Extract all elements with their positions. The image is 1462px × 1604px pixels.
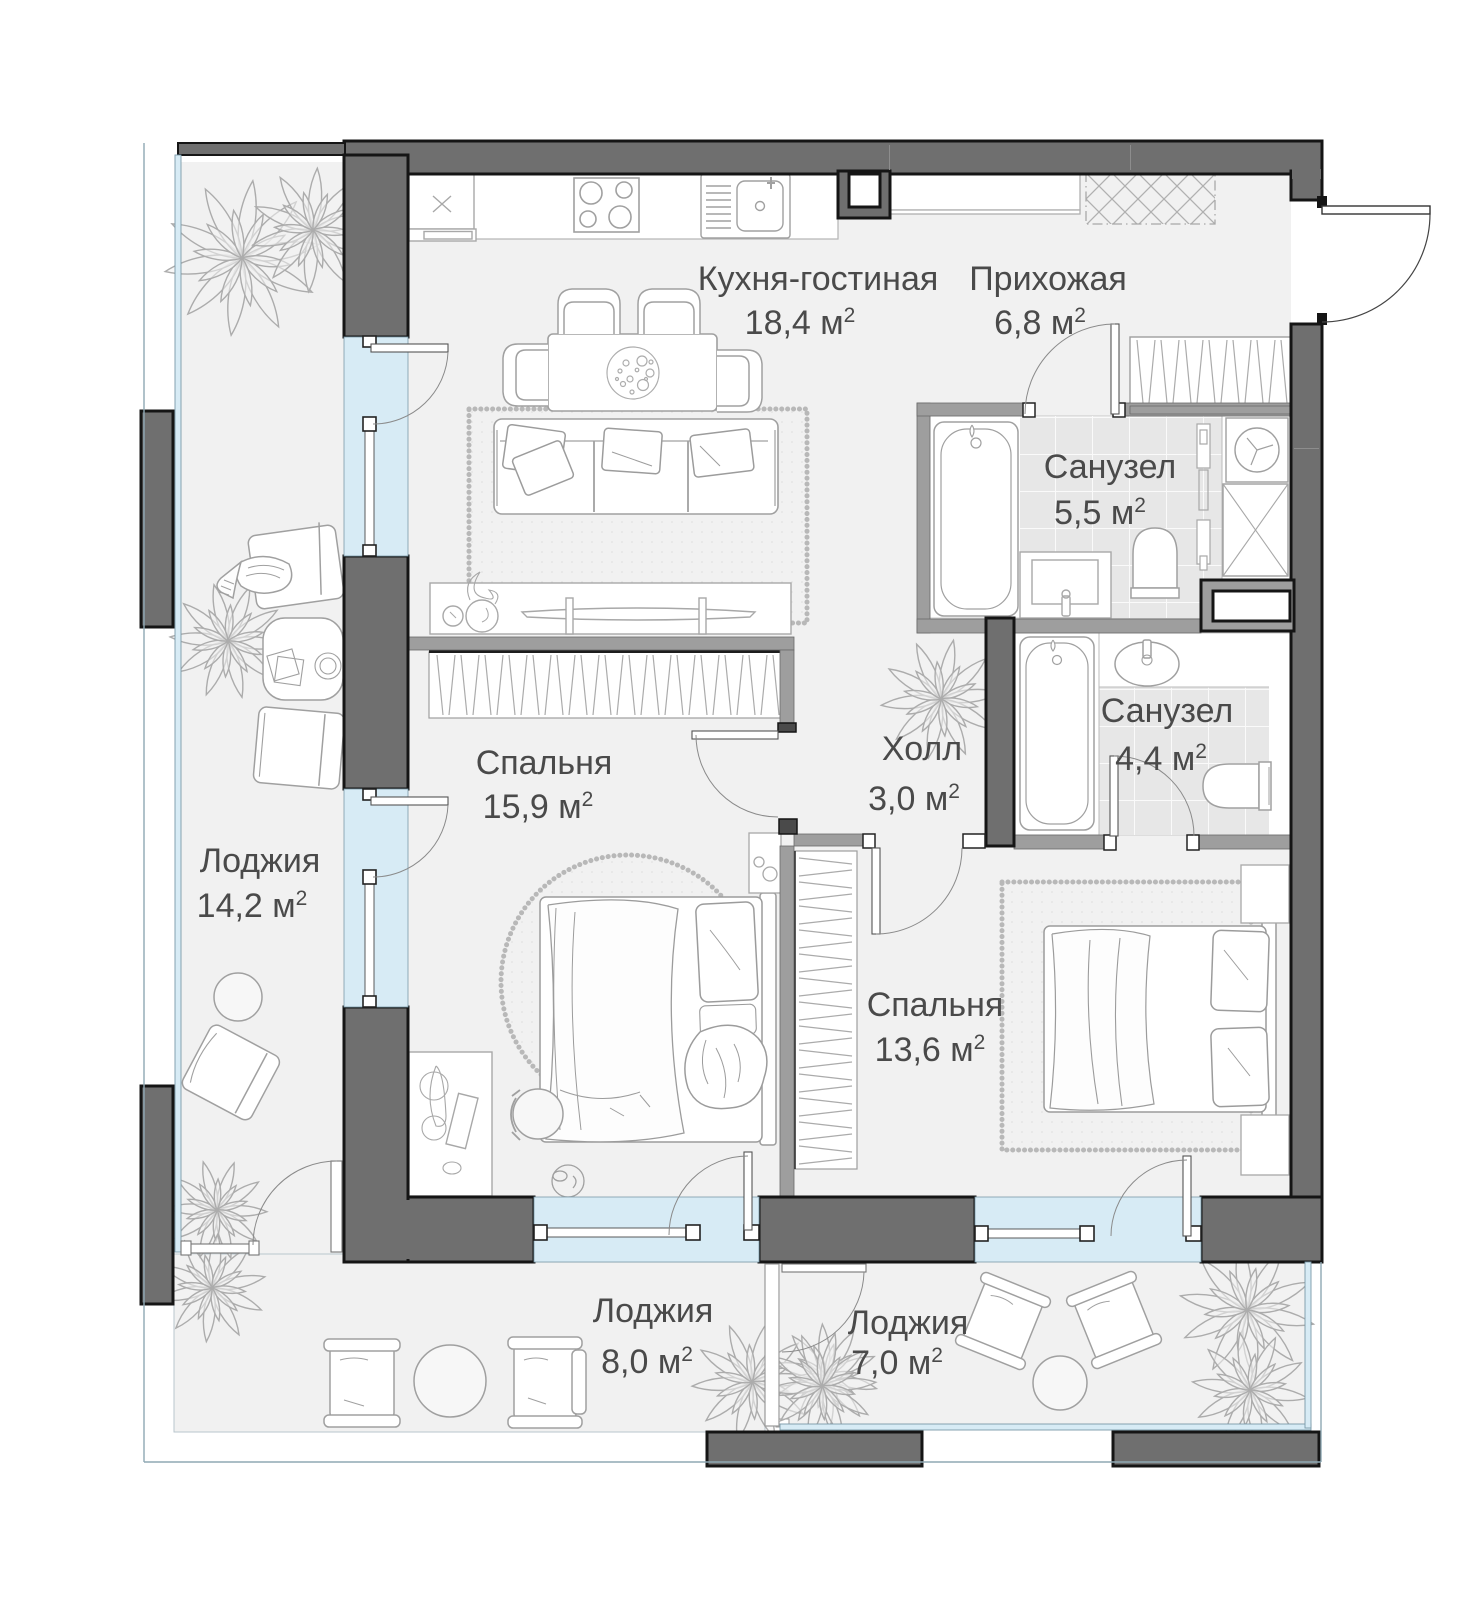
svg-text:13,6 м2: 13,6 м2 <box>875 1031 986 1069</box>
svg-text:15,9 м2: 15,9 м2 <box>483 788 594 826</box>
svg-text:Прихожая: Прихожая <box>969 260 1127 298</box>
svg-text:Лоджия: Лоджия <box>593 1292 713 1330</box>
svg-text:Лоджия: Лоджия <box>200 842 320 880</box>
svg-text:Спальня: Спальня <box>476 744 613 782</box>
svg-text:8,0 м2: 8,0 м2 <box>601 1343 693 1381</box>
svg-text:14,2 м2: 14,2 м2 <box>197 887 308 925</box>
svg-text:Спальня: Спальня <box>867 986 1004 1024</box>
svg-text:Холл: Холл <box>882 730 962 768</box>
svg-text:Лоджия: Лоджия <box>848 1304 968 1342</box>
svg-text:Санузел: Санузел <box>1101 692 1233 730</box>
svg-text:6,8 м2: 6,8 м2 <box>994 304 1086 342</box>
svg-text:Санузел: Санузел <box>1044 448 1176 486</box>
svg-text:5,5 м2: 5,5 м2 <box>1054 494 1146 532</box>
svg-text:18,4 м2: 18,4 м2 <box>745 304 856 342</box>
svg-text:7,0 м2: 7,0 м2 <box>851 1344 943 1382</box>
svg-text:Кухня-гостиная: Кухня-гостиная <box>698 260 939 298</box>
svg-text:4,4 м2: 4,4 м2 <box>1115 740 1207 778</box>
svg-text:3,0 м2: 3,0 м2 <box>868 780 960 818</box>
